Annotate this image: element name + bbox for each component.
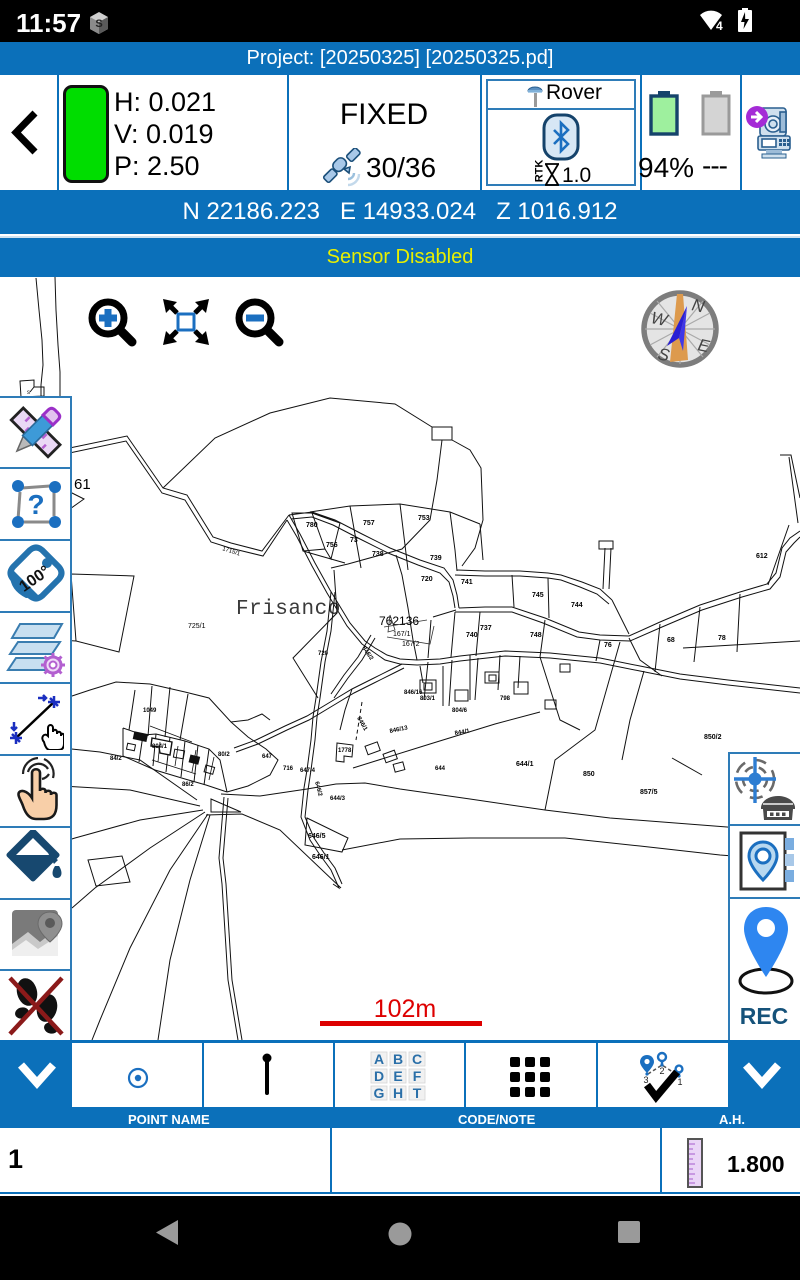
svg-text:846/13: 846/13 <box>389 725 409 735</box>
svg-text:716: 716 <box>283 766 294 772</box>
svg-text:748: 748 <box>530 632 542 639</box>
svg-text:84/2: 84/2 <box>110 756 122 762</box>
svg-text:D: D <box>374 1068 384 1084</box>
svg-text:857/5: 857/5 <box>640 789 658 796</box>
svg-text:1778: 1778 <box>338 748 352 754</box>
svg-text:S: S <box>95 18 102 30</box>
svg-text:725/1: 725/1 <box>188 623 206 630</box>
svg-text:741: 741 <box>461 579 473 586</box>
svg-text:A: A <box>374 1051 384 1067</box>
svg-text:H: H <box>393 1085 403 1101</box>
svg-text:798: 798 <box>500 696 511 702</box>
svg-text:780: 780 <box>306 522 318 529</box>
svg-text:61: 61 <box>74 476 91 493</box>
svg-text:T: T <box>413 1085 422 1101</box>
svg-text:G: G <box>374 1085 385 1101</box>
svg-text:B: B <box>393 1051 403 1067</box>
svg-text:720: 720 <box>421 576 433 583</box>
svg-text:167/1: 167/1 <box>393 631 411 638</box>
svg-text:3: 3 <box>643 1075 648 1085</box>
svg-text:745: 745 <box>532 592 544 599</box>
svg-text:757: 757 <box>363 520 375 527</box>
svg-text:646/5: 646/5 <box>308 833 326 840</box>
svg-text:803/1: 803/1 <box>420 696 436 702</box>
svg-text:1: 1 <box>677 1077 682 1087</box>
svg-text:76: 76 <box>604 642 612 649</box>
svg-text:804/1: 804/1 <box>152 744 168 750</box>
svg-text:C: C <box>412 1051 422 1067</box>
svg-text:F: F <box>413 1068 422 1084</box>
svg-text:739: 739 <box>430 555 442 562</box>
svg-text:647: 647 <box>262 754 273 760</box>
svg-text:86/2: 86/2 <box>182 782 194 788</box>
svg-text:73: 73 <box>350 537 358 544</box>
svg-text:2: 2 <box>659 1066 664 1076</box>
svg-text:644/3: 644/3 <box>330 796 346 802</box>
svg-text:737: 737 <box>480 625 492 632</box>
svg-text:762136: 762136 <box>379 614 419 628</box>
svg-text:740: 740 <box>466 632 478 639</box>
svg-text:80/2: 80/2 <box>218 752 230 758</box>
svg-text:744: 744 <box>571 602 583 609</box>
svg-text:646/2: 646/2 <box>313 781 323 798</box>
svg-text:4: 4 <box>716 19 723 32</box>
svg-text:644/1: 644/1 <box>516 761 534 768</box>
svg-text:E: E <box>393 1068 402 1084</box>
svg-text:Frisanco: Frisanco <box>236 598 341 621</box>
svg-text:1715/1: 1715/1 <box>221 546 241 558</box>
svg-text:68: 68 <box>667 637 675 644</box>
svg-text:644: 644 <box>435 766 446 772</box>
svg-text:753: 753 <box>418 515 430 522</box>
svg-text:612: 612 <box>756 553 768 560</box>
svg-text:804/6: 804/6 <box>452 708 468 714</box>
svg-text:?: ? <box>27 489 44 520</box>
svg-text:756: 756 <box>326 542 338 549</box>
svg-text:78: 78 <box>718 635 726 642</box>
svg-text:850: 850 <box>583 771 595 778</box>
svg-text:647/4: 647/4 <box>300 768 316 774</box>
svg-text:850/2: 850/2 <box>704 734 722 741</box>
